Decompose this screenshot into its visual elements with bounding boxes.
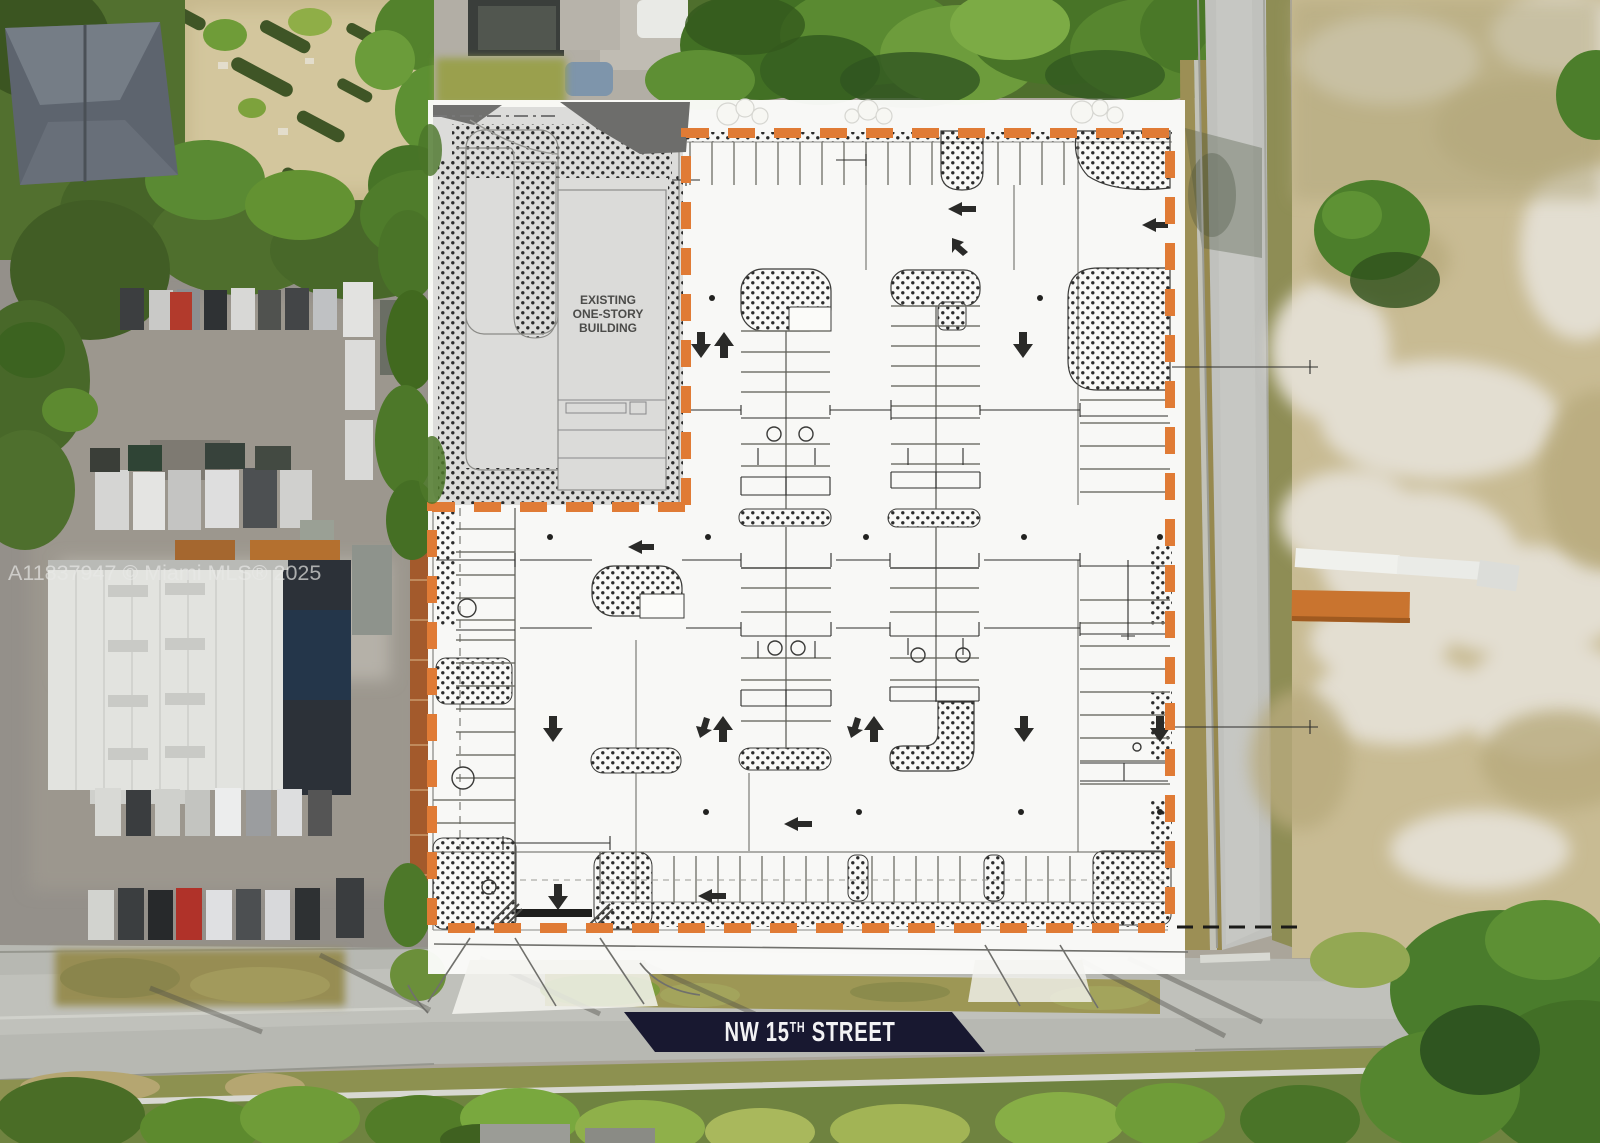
svg-text:BUILDING: BUILDING bbox=[579, 321, 637, 335]
svg-text:EXISTING: EXISTING bbox=[580, 293, 636, 307]
svg-text:NW 15TH STREET: NW 15TH STREET bbox=[724, 1017, 895, 1048]
svg-text:A11837947 © Miami MLS® 2025: A11837947 © Miami MLS® 2025 bbox=[8, 561, 321, 585]
svg-text:ONE-STORY: ONE-STORY bbox=[573, 307, 644, 321]
